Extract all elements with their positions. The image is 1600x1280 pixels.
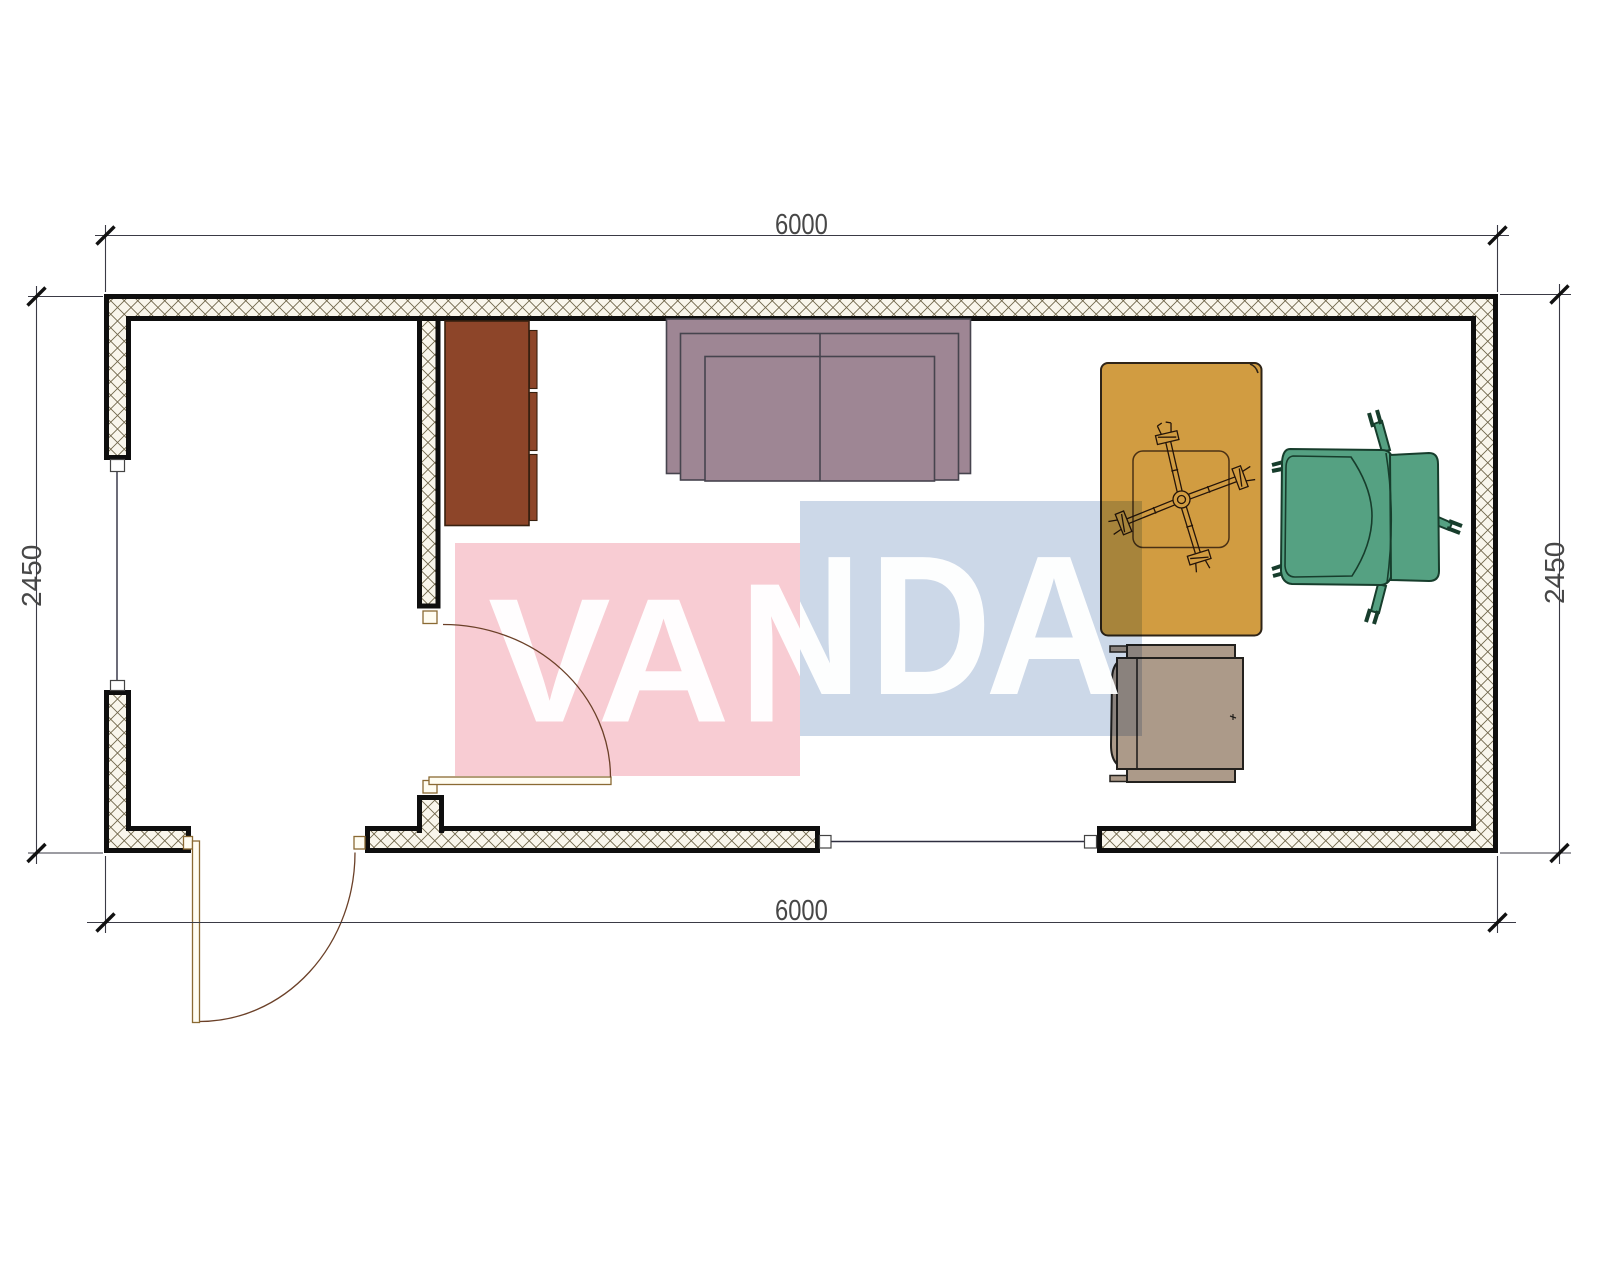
svg-text:2450: 2450 — [1539, 542, 1570, 604]
svg-text:D: D — [870, 515, 992, 737]
svg-text:A: A — [985, 514, 1123, 736]
svg-text:2450: 2450 — [16, 545, 47, 607]
svg-text:6000: 6000 — [775, 894, 828, 927]
svg-text:VA: VA — [488, 562, 730, 760]
svg-text:6000: 6000 — [775, 208, 828, 241]
